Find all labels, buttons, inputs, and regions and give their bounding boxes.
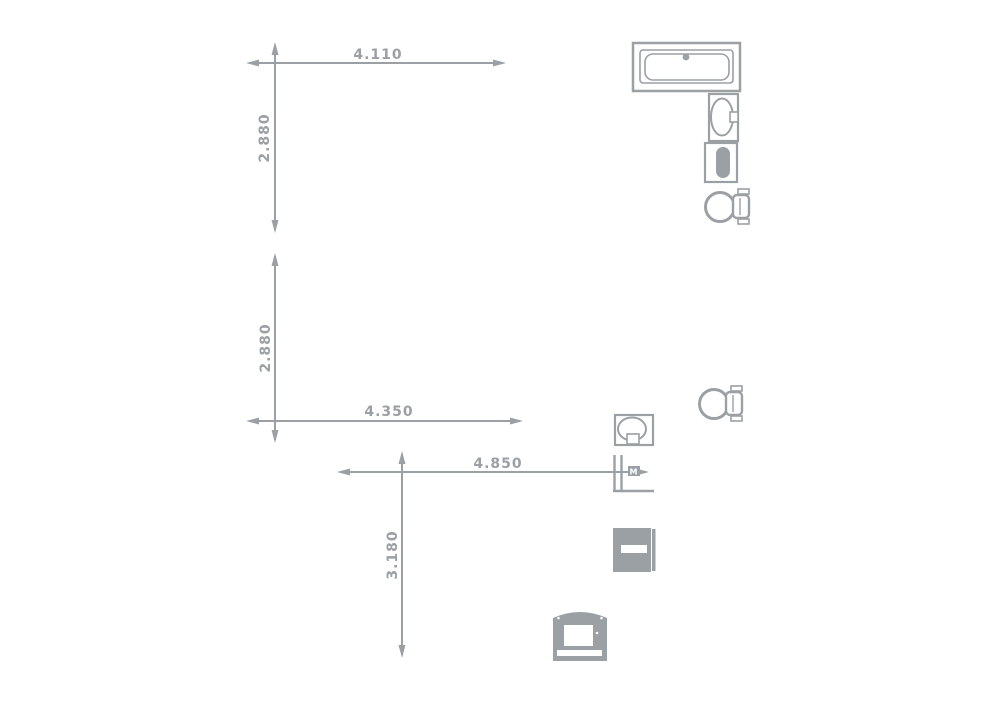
- oven-front-icon: [553, 612, 607, 661]
- dim-label-lower-left-height: 2.880: [258, 323, 274, 372]
- dim-label-lower-width: 4.850: [473, 456, 522, 472]
- toilet-upper-icon: [706, 189, 750, 224]
- washbasin-icon: [709, 94, 738, 141]
- dim-label-top-width: 4.110: [353, 47, 402, 63]
- dim-label-middle-width: 4.350: [364, 404, 413, 420]
- sink-top-view-icon: [615, 415, 653, 445]
- washing-machine-icon: [613, 528, 656, 572]
- toilet-middle-icon: [700, 386, 743, 421]
- dim-label-bottom-height: 3.180: [385, 530, 401, 579]
- boiler-icon: [705, 143, 737, 182]
- dim-label-upper-left-height: 2.880: [257, 113, 273, 162]
- door-opening-icon: M: [613, 455, 654, 492]
- door-box-label: M: [630, 468, 638, 477]
- floor-plan-canvas: M 4.110 2.880 2.880 4.350 4.850 3.180: [0, 0, 1000, 707]
- plan-linework: M: [0, 0, 1000, 707]
- bathtub-icon: [633, 43, 740, 91]
